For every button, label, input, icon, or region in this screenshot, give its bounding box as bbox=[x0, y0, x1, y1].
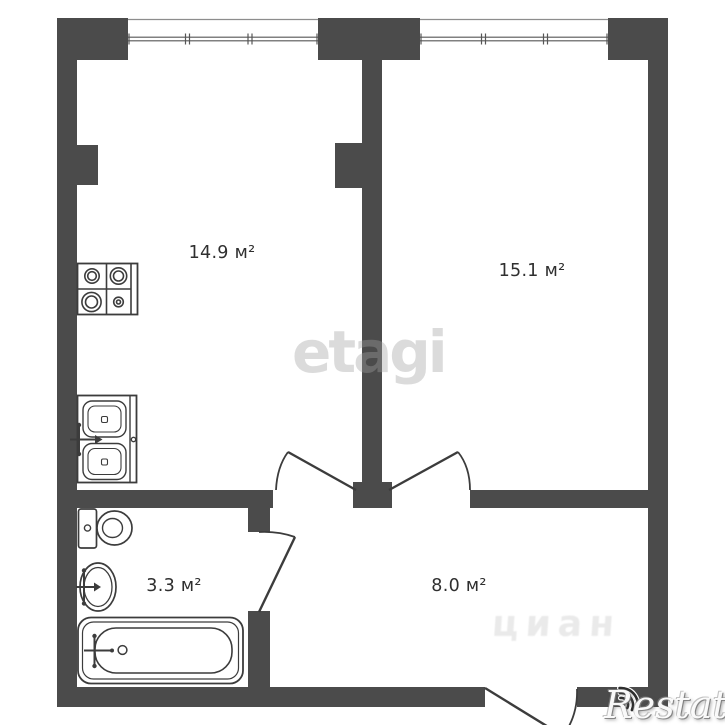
etagi-watermark: etagi bbox=[292, 323, 445, 381]
restate-watermark: Restate bbox=[604, 686, 725, 724]
door-leaf bbox=[288, 452, 356, 490]
wall-right bbox=[648, 18, 668, 707]
door-leaf bbox=[259, 537, 295, 612]
door-kitchen bbox=[276, 452, 356, 490]
door-arc bbox=[458, 452, 470, 490]
window-left bbox=[128, 20, 318, 45]
door-entrance bbox=[485, 688, 577, 725]
door-bedroom bbox=[389, 452, 470, 490]
door-arc bbox=[259, 532, 295, 537]
door-leaf bbox=[389, 452, 458, 490]
door-arc bbox=[276, 452, 288, 490]
pilaster-divider bbox=[335, 143, 362, 188]
wall-bath-lower bbox=[248, 611, 270, 687]
door-bathroom bbox=[259, 532, 295, 612]
wall-mid-left bbox=[57, 490, 273, 508]
room-area-label-hallway: 8.0 м² bbox=[431, 576, 486, 596]
toilet-icon bbox=[79, 509, 133, 548]
door-arc bbox=[563, 689, 577, 725]
wall-mid-right bbox=[470, 490, 668, 508]
wall-bottom-left bbox=[57, 687, 485, 707]
wall-divider bbox=[362, 60, 382, 485]
bathtub-icon bbox=[78, 618, 243, 684]
room-area-label-bathroom: 3.3 м² bbox=[146, 576, 201, 596]
kitchen-sink-icon bbox=[70, 396, 137, 483]
pilaster-left bbox=[77, 145, 98, 185]
door-leaf bbox=[485, 688, 563, 725]
floor-plan: 14.9 м² 15.1 м² 3.3 м² 8.0 м² etagi циан… bbox=[0, 0, 725, 725]
wall-stub-center bbox=[353, 482, 392, 508]
room-area-label-kitchen: 14.9 м² bbox=[189, 243, 256, 263]
wall-left bbox=[57, 18, 77, 707]
cian-watermark: циан bbox=[490, 603, 622, 646]
stove-icon bbox=[78, 264, 138, 315]
window-right bbox=[420, 20, 608, 45]
wall-bath-upper bbox=[248, 508, 270, 532]
room-area-label-bedroom: 15.1 м² bbox=[499, 261, 566, 281]
washbasin-icon bbox=[76, 563, 116, 611]
wall-top-middle bbox=[318, 18, 420, 60]
